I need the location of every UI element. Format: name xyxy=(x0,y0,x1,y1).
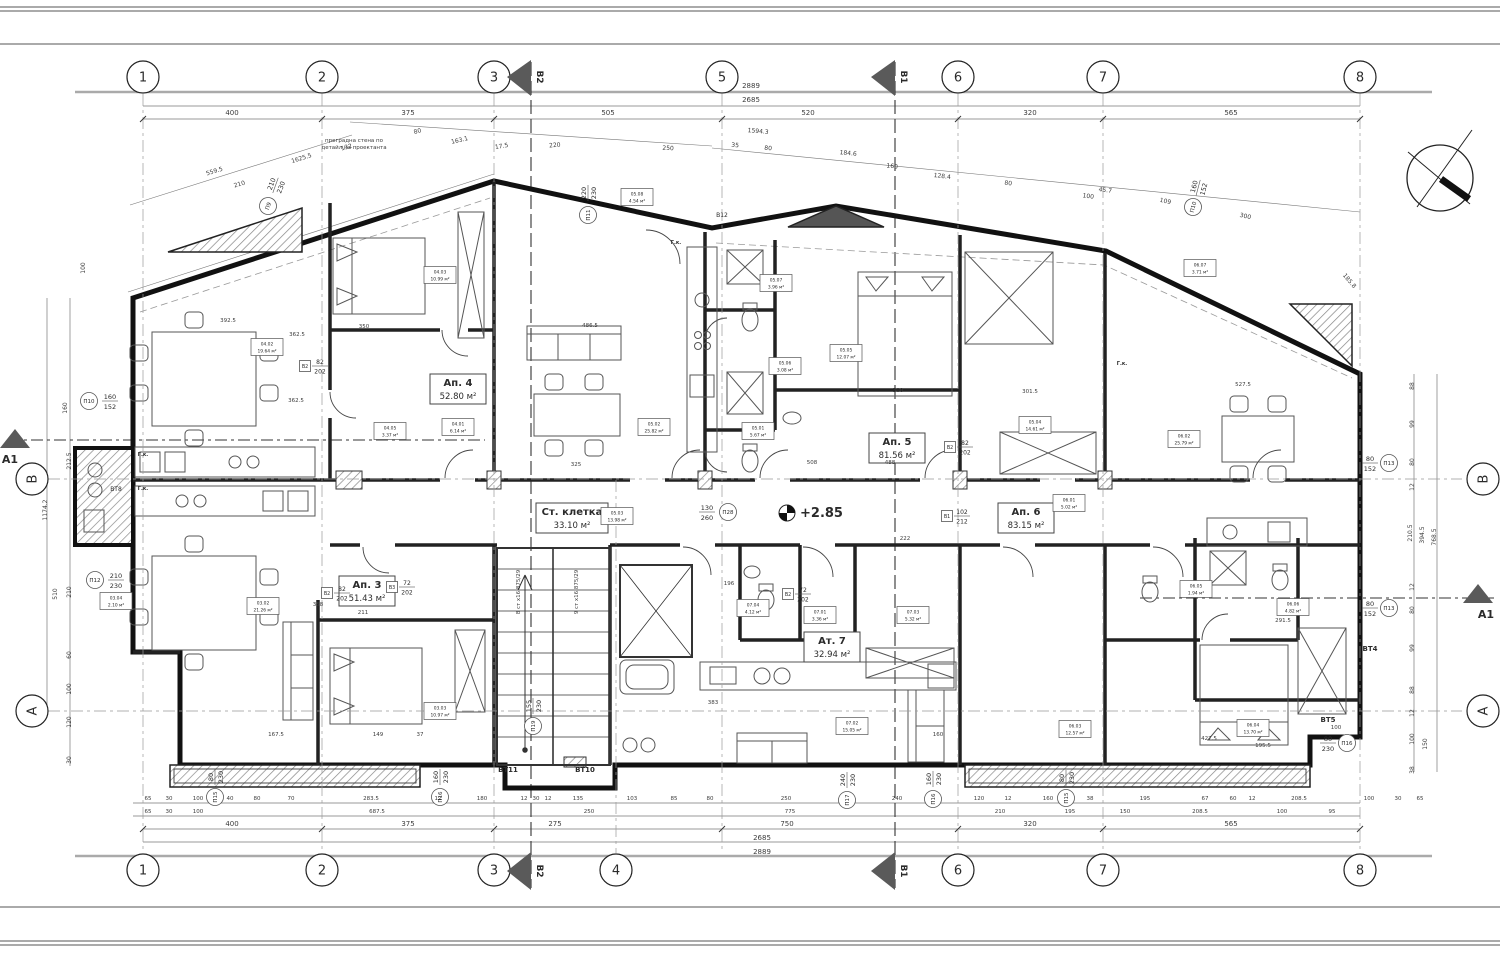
toilet xyxy=(742,444,758,472)
dim-label: 160 xyxy=(62,402,69,414)
dim-label: 80 xyxy=(254,796,261,802)
svg-text:8: 8 xyxy=(1356,864,1364,879)
svg-text:06.05: 06.05 xyxy=(1190,584,1203,590)
svg-text:230: 230 xyxy=(275,180,287,194)
shower xyxy=(727,250,763,284)
svg-text:05.01: 05.01 xyxy=(752,426,765,432)
dim-label: 60 xyxy=(66,651,73,659)
window-tag: П9210230 xyxy=(257,175,288,218)
dim-label: 128.4 xyxy=(933,172,951,181)
svg-text:152: 152 xyxy=(1364,465,1376,473)
window-tag: П12210230 xyxy=(87,572,125,591)
svg-text:230: 230 xyxy=(110,582,122,590)
svg-text:05.03: 05.03 xyxy=(611,511,624,517)
dining-set xyxy=(1222,396,1294,482)
svg-text:06.01: 06.01 xyxy=(1063,498,1076,504)
dim-label: 212.5 xyxy=(66,452,73,469)
dim-label: 132 xyxy=(340,142,353,152)
shower xyxy=(1210,551,1246,585)
dim-label: 486.5 xyxy=(582,323,598,329)
wardrobe xyxy=(866,648,954,678)
dim-label: 300 xyxy=(1239,212,1252,221)
toilet xyxy=(742,303,758,331)
dim-label: 17.5 xyxy=(495,142,510,151)
dim-label: 250 xyxy=(662,145,674,153)
apartment-label: Ап. 683.15 м² xyxy=(998,503,1054,533)
dim-label: 301.5 xyxy=(1022,389,1038,395)
dim-label: 100 xyxy=(1331,725,1342,731)
dim-label: 37 xyxy=(417,732,424,738)
svg-text:230: 230 xyxy=(1322,745,1334,753)
svg-text:07.01: 07.01 xyxy=(814,610,827,616)
svg-text:80: 80 xyxy=(1366,455,1374,463)
kitchen-counter xyxy=(700,662,956,690)
svg-text:8: 8 xyxy=(1356,71,1364,86)
dim-label: 80 xyxy=(707,796,714,802)
svg-text:3.71 м²: 3.71 м² xyxy=(1192,270,1208,276)
sheet-border xyxy=(0,7,1500,945)
svg-text:04.05: 04.05 xyxy=(384,426,397,432)
svg-text:5.67 м²: 5.67 м² xyxy=(750,433,766,439)
window-tag: П1380152 xyxy=(1362,455,1398,474)
svg-text:04.02: 04.02 xyxy=(261,342,274,348)
svg-text:7: 7 xyxy=(1099,71,1107,86)
dim-label: 12 xyxy=(1005,796,1012,802)
dim-label: 250 xyxy=(781,796,792,802)
bathtub xyxy=(620,660,674,694)
axis-bubble: 3 xyxy=(478,61,510,93)
svg-text:51.43 м²: 51.43 м² xyxy=(349,594,386,604)
axis-bubble: 4 xyxy=(600,854,632,886)
dim-label: 2889 xyxy=(742,82,760,90)
svg-text:220: 220 xyxy=(580,187,588,199)
dim-label: 38 xyxy=(1409,766,1416,774)
elevation-marker: +2.85 xyxy=(779,505,843,521)
svg-text:A: A xyxy=(1477,706,1492,715)
svg-text:05.02: 05.02 xyxy=(648,422,661,428)
svg-text:80: 80 xyxy=(1324,735,1332,743)
dim-label: 150 xyxy=(1422,738,1429,750)
svg-text:12.57 м²: 12.57 м² xyxy=(1065,731,1084,737)
room-tag: 06.051.94 м² xyxy=(1180,581,1212,598)
section-arrow: A1 xyxy=(1463,584,1494,621)
svg-text:6.14 м²: 6.14 м² xyxy=(450,429,466,435)
axis-bubble: 5 xyxy=(706,61,738,93)
svg-text:152: 152 xyxy=(1364,610,1376,618)
dim-label: 275 xyxy=(548,820,561,828)
sofa xyxy=(527,326,621,360)
wardrobe xyxy=(458,212,484,338)
svg-text:3.08 м²: 3.08 м² xyxy=(777,368,793,374)
dim-label: 565 xyxy=(1224,820,1237,828)
dim-label: 427.5 xyxy=(1201,736,1217,742)
svg-text:82: 82 xyxy=(338,586,346,593)
dim-label: 100 xyxy=(80,262,87,274)
dim-label: 12 xyxy=(545,796,552,802)
dim-label: 160 xyxy=(933,732,944,738)
svg-text:83.15 м²: 83.15 м² xyxy=(1008,521,1045,531)
svg-text:06.06: 06.06 xyxy=(1287,602,1300,608)
room-tag: 03.042.10 м² xyxy=(100,593,132,610)
svg-text:B1: B1 xyxy=(898,864,908,877)
dim-label: 210 xyxy=(66,586,73,598)
dim-label: 1594.3 xyxy=(747,127,769,136)
annotation-text: Г.к. xyxy=(138,486,148,492)
staircase xyxy=(497,548,610,765)
annotation-text: В12 xyxy=(716,212,728,219)
dim-label: 12 xyxy=(1409,709,1416,717)
dim-label: 180 xyxy=(477,796,488,802)
dim-label: 12 xyxy=(435,796,442,802)
dim-label: 2889 xyxy=(753,848,771,856)
dim-label: 109 xyxy=(1159,197,1172,206)
svg-text:13.98 м²: 13.98 м² xyxy=(607,518,626,524)
svg-text:П12: П12 xyxy=(89,578,100,584)
door-tag: В272202 xyxy=(783,587,812,604)
svg-text:4.12 м²: 4.12 м² xyxy=(745,610,761,616)
dim-label: 40 xyxy=(227,796,234,802)
room-tag: 06.064.82 м² xyxy=(1277,599,1309,616)
dim-label: 30 xyxy=(66,756,73,764)
svg-text:202: 202 xyxy=(314,369,326,376)
svg-text:07.02: 07.02 xyxy=(846,721,859,727)
svg-text:В2: В2 xyxy=(324,591,330,597)
svg-text:14.61 м²: 14.61 м² xyxy=(1025,427,1044,433)
annotation-text: ВТ10 xyxy=(575,766,595,774)
svg-text:П10: П10 xyxy=(83,399,95,405)
svg-text:160: 160 xyxy=(104,393,116,401)
svg-text:32.94 м²: 32.94 м² xyxy=(814,650,851,660)
svg-text:П16: П16 xyxy=(1341,741,1353,747)
svg-text:B2: B2 xyxy=(534,864,544,877)
dim-label: 30 xyxy=(166,809,173,815)
floor-plan-sheet: +2.85 преградна стена по детайл на проек… xyxy=(0,0,1500,953)
stair-note: 9 ст x16.875/29 xyxy=(574,569,580,614)
svg-text:210: 210 xyxy=(110,572,122,580)
dim-label: 195 xyxy=(1065,809,1076,815)
svg-text:П15: П15 xyxy=(213,791,219,803)
room-tag: 05.0225.82 м² xyxy=(638,419,670,436)
dim-label: 392.5 xyxy=(220,318,236,324)
dim-label: 358 xyxy=(313,602,324,608)
svg-text:72: 72 xyxy=(799,587,807,594)
svg-text:230: 230 xyxy=(217,771,225,783)
svg-text:A1: A1 xyxy=(2,453,18,466)
dim-label: 12 xyxy=(1249,796,1256,802)
annotation-text: Г.к. xyxy=(1117,361,1127,367)
washbasin xyxy=(623,738,655,752)
svg-text:06.02: 06.02 xyxy=(1178,434,1191,440)
room-tag: 04.053.37 м² xyxy=(374,423,406,440)
svg-text:Ап. 4: Ап. 4 xyxy=(444,378,473,389)
dim-label: 80 xyxy=(1004,180,1013,188)
kitchen-counter xyxy=(687,247,717,452)
dim-label: 195 xyxy=(1140,796,1151,802)
svg-text:160: 160 xyxy=(432,771,440,783)
dim-label: 210.5 xyxy=(1407,524,1414,541)
dim-label: 80 xyxy=(1409,606,1416,614)
room-tag: 04.0310.99 м² xyxy=(424,267,456,284)
svg-text:202: 202 xyxy=(797,597,809,604)
section-flag: B2 xyxy=(507,60,544,96)
dim-label: 208.5 xyxy=(1192,809,1208,815)
svg-text:52.80 м²: 52.80 м² xyxy=(440,392,477,402)
dim-label: 99 xyxy=(1409,420,1416,428)
dim-label: 300 xyxy=(893,388,904,394)
dim-label: 394.5 xyxy=(1419,526,1426,543)
dim-label: 508 xyxy=(807,460,818,466)
window-tag: П10160152 xyxy=(81,393,119,412)
sofa xyxy=(908,690,944,762)
dim-label: 362.5 xyxy=(288,398,304,404)
washbasin xyxy=(783,412,801,424)
dim-label: 80 xyxy=(764,145,772,153)
svg-text:160: 160 xyxy=(1189,180,1200,194)
dim-label: 30 xyxy=(533,796,540,802)
section-arrow: A1 xyxy=(0,429,30,466)
svg-text:4.82 м²: 4.82 м² xyxy=(1285,609,1301,615)
room-tag: 07.044.12 м² xyxy=(737,600,769,617)
washbasin xyxy=(744,566,760,578)
dim-label: 291.5 xyxy=(1275,618,1291,624)
bed xyxy=(858,272,952,396)
axis-bubble: 7 xyxy=(1087,854,1119,886)
kitchen-counter xyxy=(135,447,315,477)
dim-label: 687.5 xyxy=(369,809,385,815)
dim-label: 505 xyxy=(601,109,614,117)
dim-label: 375 xyxy=(401,820,414,828)
dim-label: 30 xyxy=(1395,796,1402,802)
svg-text:В3: В3 xyxy=(389,585,395,591)
partition-note: преградна стена по xyxy=(325,138,384,144)
dim-label: 775 xyxy=(785,809,796,815)
dim-label: 65 xyxy=(145,796,152,802)
dim-label: 400 xyxy=(225,820,238,828)
svg-text:1.94 м²: 1.94 м² xyxy=(1188,591,1204,597)
elevator xyxy=(620,565,692,657)
dim-label: 100 xyxy=(1082,192,1094,201)
svg-text:B: B xyxy=(26,475,41,484)
dim-label: 210 xyxy=(233,179,246,189)
section-flag: B1 xyxy=(871,852,908,890)
dim-label: 80 xyxy=(413,127,422,136)
svg-text:12.07 м²: 12.07 м² xyxy=(836,355,855,361)
svg-text:202: 202 xyxy=(336,596,348,603)
svg-text:5: 5 xyxy=(718,71,726,86)
dim-label: 325 xyxy=(571,462,582,468)
dim-label: 320 xyxy=(1023,109,1036,117)
dim-label: 95 xyxy=(1329,809,1336,815)
section-flag: B2 xyxy=(507,852,544,890)
svg-text:П13: П13 xyxy=(1383,461,1395,467)
apartment-label: Ст. клетка33.10 м² xyxy=(536,503,608,533)
dim-label: 565 xyxy=(1224,109,1237,117)
dim-label: 750 xyxy=(780,820,793,828)
dim-label: 88 xyxy=(1409,686,1416,694)
svg-text:230: 230 xyxy=(1068,772,1076,784)
elevation-value: +2.85 xyxy=(800,506,843,521)
axis-bubble: A xyxy=(1467,695,1499,727)
svg-text:230: 230 xyxy=(849,774,857,786)
svg-text:3: 3 xyxy=(490,864,498,879)
dining-set xyxy=(130,312,278,446)
axis-bubble: B xyxy=(16,463,48,495)
wardrobe xyxy=(455,630,485,712)
svg-text:6: 6 xyxy=(954,864,962,879)
dim-label: 100 xyxy=(1277,809,1288,815)
svg-text:07.03: 07.03 xyxy=(907,610,920,616)
dim-label: 195.5 xyxy=(1255,743,1271,749)
svg-text:П11: П11 xyxy=(586,209,592,220)
svg-text:06.07: 06.07 xyxy=(1194,263,1207,269)
dim-label: 30 xyxy=(166,796,173,802)
room-tag: 05.084.54 м² xyxy=(621,189,653,206)
window-tag: П1380152 xyxy=(1362,600,1398,619)
dim-label: 35 xyxy=(731,142,739,150)
dim-label: 196 xyxy=(724,581,735,587)
svg-text:25.82 м²: 25.82 м² xyxy=(644,429,663,435)
window-tag: П10160152 xyxy=(1183,178,1210,218)
svg-text:03.02: 03.02 xyxy=(257,601,270,607)
dim-label: 100 xyxy=(1364,796,1375,802)
svg-text:82: 82 xyxy=(316,359,324,366)
svg-text:80: 80 xyxy=(1366,600,1374,608)
svg-text:7: 7 xyxy=(1099,864,1107,879)
door-tag: В1102212 xyxy=(942,509,971,526)
svg-text:детайл на проектанта: детайл на проектанта xyxy=(321,144,386,151)
axis-bubble: 6 xyxy=(942,61,974,93)
dim-label: 12 xyxy=(1409,483,1416,491)
room-tag: 07.0215.05 м² xyxy=(836,718,868,735)
dim-label: 362.5 xyxy=(289,332,305,338)
furniture xyxy=(84,212,1346,763)
wardrobe xyxy=(965,252,1053,344)
svg-text:В2: В2 xyxy=(302,364,308,370)
dim-label: 103 xyxy=(627,796,638,802)
svg-text:102: 102 xyxy=(956,509,968,516)
dim-label: 100 xyxy=(193,796,204,802)
bed xyxy=(330,648,422,724)
svg-text:80: 80 xyxy=(1058,774,1066,782)
svg-text:03.04: 03.04 xyxy=(110,596,123,602)
svg-text:06.04: 06.04 xyxy=(1247,723,1260,729)
room-tag: 07.035.32 м² xyxy=(897,607,929,624)
stair-note: 8 ст x16.875/29 xyxy=(516,569,522,614)
axis-bubble: B xyxy=(1467,463,1499,495)
window-tag: П28130260 xyxy=(699,504,737,523)
svg-text:5.32 м²: 5.32 м² xyxy=(905,617,921,623)
svg-text:П28: П28 xyxy=(722,510,734,516)
svg-text:130: 130 xyxy=(701,504,713,512)
svg-text:260: 260 xyxy=(701,514,713,522)
svg-text:Ап. 6: Ап. 6 xyxy=(1012,507,1041,518)
svg-text:П16: П16 xyxy=(931,793,937,805)
svg-text:1: 1 xyxy=(139,71,147,86)
svg-text:П15: П15 xyxy=(1064,792,1070,804)
dim-label: 163.1 xyxy=(451,135,469,146)
dim-label: 167.5 xyxy=(268,732,284,738)
room-tag: 05.015.67 м² xyxy=(742,423,774,440)
svg-text:2.10 м²: 2.10 м² xyxy=(108,603,124,609)
svg-text:212: 212 xyxy=(956,519,968,526)
dim-label: 210 xyxy=(995,809,1006,815)
svg-text:3.36 м²: 3.36 м² xyxy=(812,617,828,623)
dim-label: 768.5 xyxy=(1431,528,1438,545)
svg-text:05.04: 05.04 xyxy=(1029,420,1042,426)
dim-label: 208.5 xyxy=(1291,796,1307,802)
axis-bubble: 1 xyxy=(127,61,159,93)
dim-label: 510 xyxy=(52,588,59,600)
dim-label: 211 xyxy=(358,610,369,616)
section-flag: B1 xyxy=(871,60,908,96)
svg-text:B: B xyxy=(1477,475,1492,484)
svg-text:04.03: 04.03 xyxy=(434,270,447,276)
dim-label: 375 xyxy=(401,109,414,117)
dim-label: 100 xyxy=(1409,733,1416,745)
svg-text:230: 230 xyxy=(442,771,450,783)
svg-text:3.96 м²: 3.96 м² xyxy=(768,285,784,291)
svg-text:B1: B1 xyxy=(898,70,908,83)
dim-label: 1174.2 xyxy=(42,499,49,520)
dim-label: 88 xyxy=(1409,382,1416,390)
dim-label: 400 xyxy=(225,109,238,117)
svg-text:3: 3 xyxy=(490,71,498,86)
dim-label: 67 xyxy=(1202,796,1209,802)
bed xyxy=(333,238,425,314)
dim-label: 80 xyxy=(1409,458,1416,466)
annotation-text: ВТ11 xyxy=(498,766,518,774)
dim-label: 99 xyxy=(1409,644,1416,652)
svg-text:П13: П13 xyxy=(1383,606,1395,612)
dim-label: 2685 xyxy=(742,96,760,104)
svg-text:152: 152 xyxy=(104,403,116,411)
svg-text:240: 240 xyxy=(839,774,847,786)
dim-label: 222 xyxy=(900,536,911,542)
svg-text:В1: В1 xyxy=(944,514,950,520)
dim-label: 38 xyxy=(1087,796,1094,802)
room-tag: 05.0512.07 м² xyxy=(830,345,862,362)
kitchen-counter xyxy=(1207,518,1307,546)
dim-label: 150 xyxy=(1120,809,1131,815)
svg-text:152: 152 xyxy=(1199,182,1210,196)
room-tag: 05.063.08 м² xyxy=(769,358,801,375)
svg-text:05.08: 05.08 xyxy=(631,192,644,198)
wardrobe xyxy=(1000,432,1096,474)
annotation-text: Г.к. xyxy=(138,452,148,458)
room-tag: 07.013.36 м² xyxy=(804,607,836,624)
annotation-text: ВТ8 xyxy=(110,486,122,493)
svg-text:B2: B2 xyxy=(534,70,544,83)
svg-text:19.64 м²: 19.64 м² xyxy=(257,349,276,355)
axis-bubble: 3 xyxy=(478,854,510,886)
door-tag: В282202 xyxy=(300,359,329,376)
svg-text:202: 202 xyxy=(959,450,971,457)
room-tag: 06.0225.79 м² xyxy=(1168,431,1200,448)
room-tag: 05.0414.61 м² xyxy=(1019,417,1051,434)
svg-text:4: 4 xyxy=(612,864,620,879)
svg-text:05.06: 05.06 xyxy=(779,361,792,367)
room-tag: 06.0312.57 м² xyxy=(1059,721,1091,738)
window-tag: П17240230 xyxy=(839,772,858,809)
svg-text:2: 2 xyxy=(318,71,326,86)
dim-label: 240 xyxy=(892,796,903,802)
svg-text:6: 6 xyxy=(954,71,962,86)
svg-text:2: 2 xyxy=(318,864,326,879)
dim-label: 520 xyxy=(801,109,814,117)
shower xyxy=(727,372,763,414)
terraces xyxy=(168,206,1352,787)
annotation-text: Г.к. xyxy=(671,240,681,246)
